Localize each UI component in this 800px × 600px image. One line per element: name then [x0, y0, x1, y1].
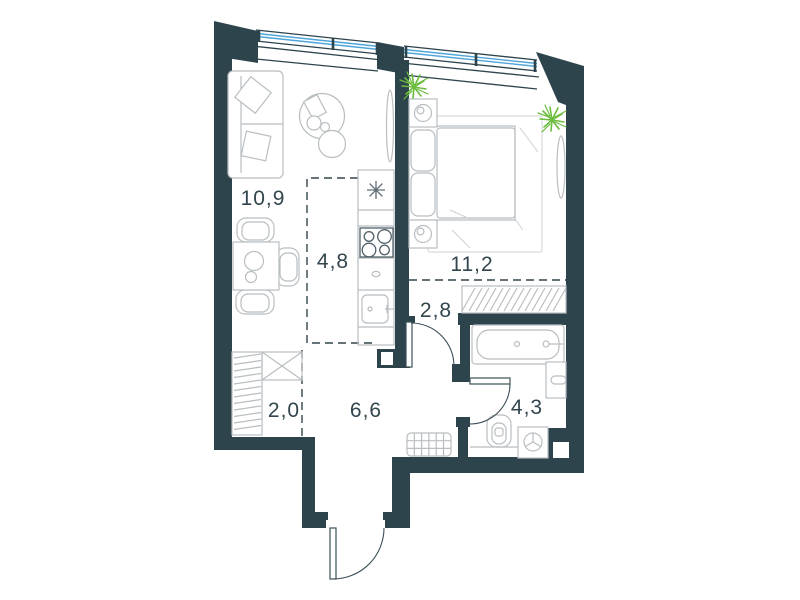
- chair-icon: [237, 218, 274, 242]
- coffee-table-icon: [300, 94, 346, 158]
- nightstand-lamp-icon: [409, 220, 437, 248]
- kitchen-counter-icon: [358, 170, 394, 345]
- wardrobe-x-icon: [262, 352, 302, 380]
- door-swing-icon: [406, 322, 454, 367]
- pillow-icon: [411, 130, 435, 171]
- tv-icon: [387, 90, 394, 162]
- kitchen-sink-icon: [362, 295, 394, 323]
- washbasin-icon: [546, 362, 566, 398]
- dining-set: [233, 218, 299, 314]
- bed-icon: [409, 126, 515, 220]
- entrance-door-icon: [330, 528, 384, 579]
- room-label-bathroom: 4,3: [511, 396, 543, 419]
- room-label-kitchen: 4,8: [317, 250, 349, 273]
- room-label-entry-hall: 6,6: [350, 399, 382, 422]
- room-label-living-room: 10,9: [241, 187, 286, 210]
- pillow-icon: [411, 173, 435, 216]
- pillow-icon: [241, 131, 271, 161]
- bedroom-closet-hatch-icon: [462, 286, 566, 313]
- mirror-icon: [557, 136, 565, 198]
- bathtub-icon: [472, 325, 564, 364]
- sofa-icon: [228, 71, 283, 178]
- room-label-bedroom: 11,2: [450, 253, 493, 276]
- shaft-notch-icon: [381, 352, 393, 365]
- closet-rail-icon: [232, 352, 262, 435]
- toilet-icon: [470, 415, 518, 447]
- room-label-hall: 2,8: [420, 299, 452, 322]
- nightstand-lamp-icon: [409, 99, 437, 127]
- doormat-icon: [407, 433, 451, 456]
- shaft-notch-icon: [553, 442, 569, 458]
- hood-asterisk-icon: [367, 181, 385, 199]
- cabinet-knob-icon: [372, 271, 380, 276]
- floor-plan-canvas: 10,9 4,8 11,2 2,8 6,6 2,0 4,3: [0, 0, 800, 600]
- washing-machine-icon: [518, 427, 548, 458]
- floor-plan-page: 10,9 4,8 11,2 2,8 6,6 2,0 4,3: [0, 0, 800, 600]
- room-label-wardrobe: 2,0: [268, 399, 300, 422]
- chair-icon: [236, 290, 274, 314]
- stove-icon: [360, 228, 393, 257]
- dining-table-icon: [233, 242, 279, 290]
